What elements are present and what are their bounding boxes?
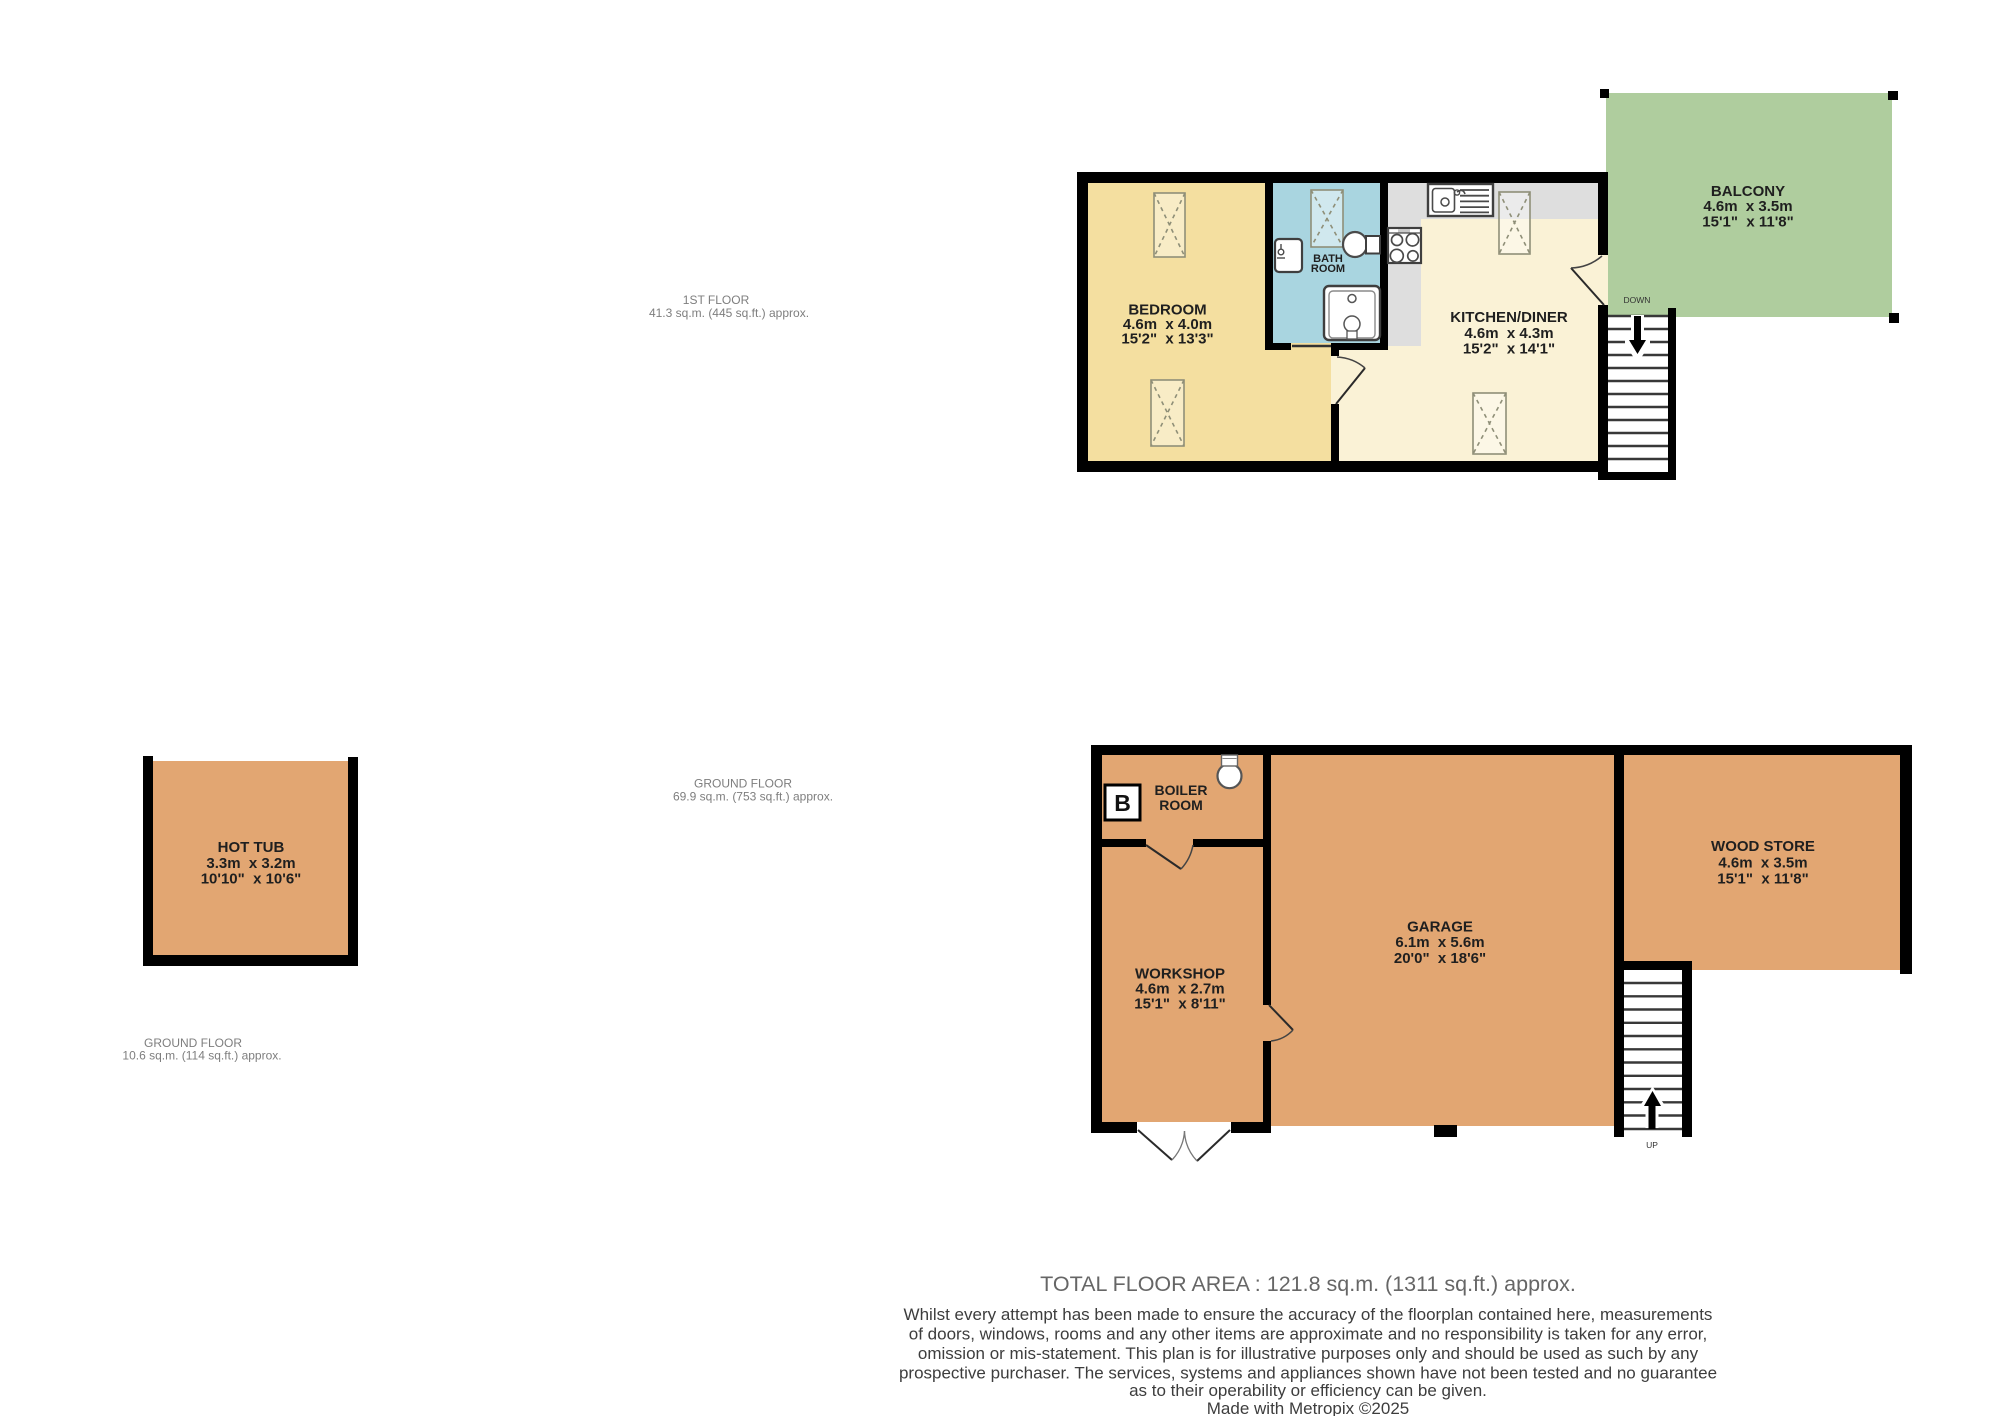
svg-text:6.1m x 5.6m: 6.1m x 5.6m [1395,934,1484,951]
svg-text:of doors, windows, rooms and a: of doors, windows, rooms and any other i… [909,1325,1707,1344]
svg-text:GROUND FLOOR: GROUND FLOOR [694,777,792,791]
svg-text:1ST FLOOR: 1ST FLOOR [683,293,750,307]
svg-text:omission or mis-statement. Thi: omission or mis-statement. This plan is … [918,1344,1699,1363]
svg-text:as to their operability or eff: as to their operability or efficiency ca… [1129,1381,1487,1400]
svg-text:69.9 sq.m. (753 sq.ft.) approx: 69.9 sq.m. (753 sq.ft.) approx. [673,790,833,804]
svg-text:4.6m x 3.5m: 4.6m x 3.5m [1703,198,1792,215]
svg-text:Whilst every attempt has been: Whilst every attempt has been made to en… [904,1305,1713,1324]
svg-text:15'1" x 8'11": 15'1" x 8'11" [1134,996,1225,1013]
svg-text:KITCHEN/DINER: KITCHEN/DINER [1450,309,1568,326]
svg-text:DOWN: DOWN [1624,295,1651,305]
svg-text:ROOM: ROOM [1159,797,1203,813]
svg-text:15'2" x 14'1": 15'2" x 14'1" [1463,341,1555,358]
svg-text:4.6m x 4.3m: 4.6m x 4.3m [1464,325,1553,342]
svg-text:TOTAL FLOOR AREA : 121.8 sq.m.: TOTAL FLOOR AREA : 121.8 sq.m. (1311 sq.… [1040,1272,1576,1296]
svg-text:10'10" x 10'6": 10'10" x 10'6" [201,871,302,888]
svg-text:4.6m x 3.5m: 4.6m x 3.5m [1718,855,1807,872]
svg-text:prospective purchaser. The ser: prospective purchaser. The services, sys… [899,1364,1717,1383]
svg-text:BOILER: BOILER [1155,782,1208,798]
svg-text:Made with Metropix ©2025: Made with Metropix ©2025 [1207,1399,1409,1416]
svg-text:15'2" x 13'3": 15'2" x 13'3" [1121,331,1213,348]
svg-text:15'1" x 11'8": 15'1" x 11'8" [1717,871,1808,888]
svg-text:3.3m x 3.2m: 3.3m x 3.2m [206,855,295,872]
svg-text:WOOD STORE: WOOD STORE [1711,838,1815,855]
svg-text:15'1" x 11'8": 15'1" x 11'8" [1702,214,1793,231]
svg-text:GARAGE: GARAGE [1407,919,1473,936]
svg-text:HOT TUB: HOT TUB [218,839,285,856]
svg-text:UP: UP [1646,1140,1658,1150]
svg-text:B: B [1114,790,1131,816]
svg-text:ROOM: ROOM [1311,263,1345,275]
svg-text:41.3 sq.m. (445 sq.ft.) approx: 41.3 sq.m. (445 sq.ft.) approx. [649,306,809,320]
svg-text:20'0" x 18'6": 20'0" x 18'6" [1394,950,1486,967]
svg-text:10.6 sq.m. (114 sq.ft.) approx: 10.6 sq.m. (114 sq.ft.) approx. [122,1049,281,1063]
